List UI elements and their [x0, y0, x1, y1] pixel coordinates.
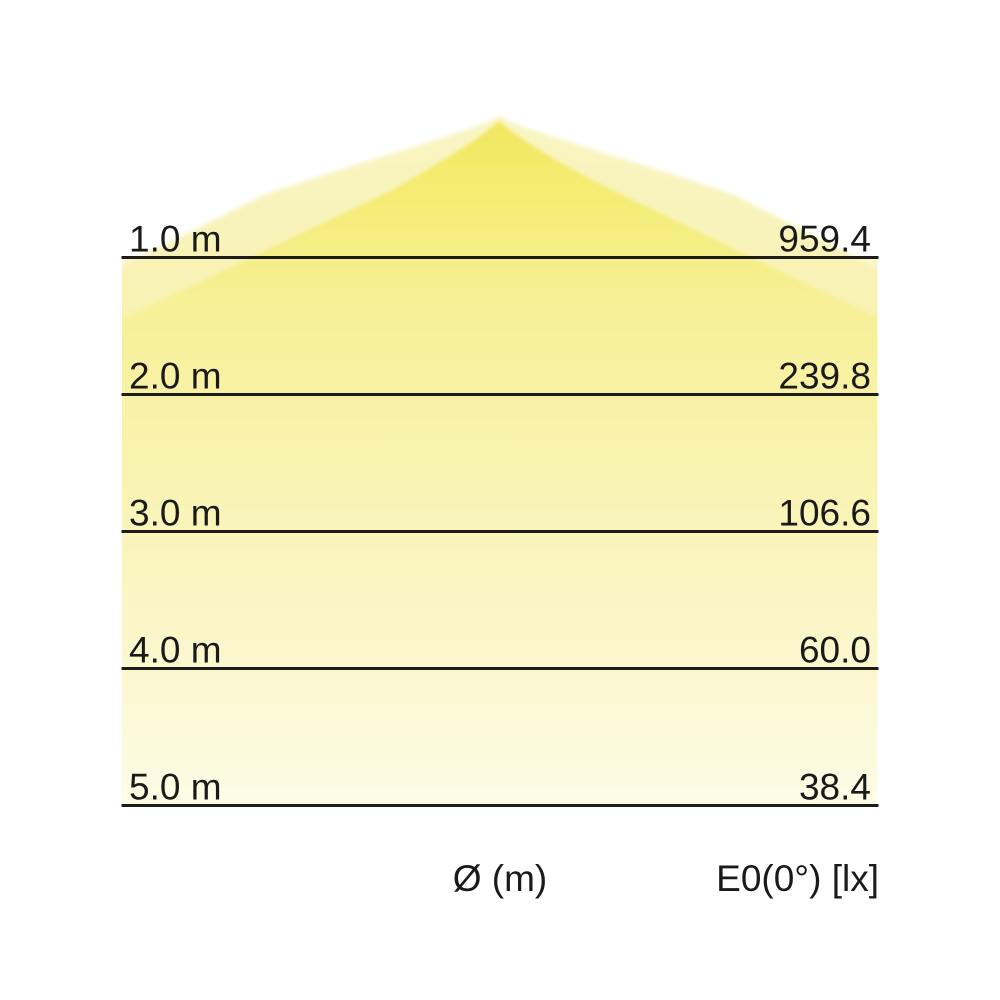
svg-text:Ø (m): Ø (m) [453, 858, 548, 899]
svg-text:2.0 m: 2.0 m [129, 356, 222, 397]
svg-text:5.0 m: 5.0 m [129, 767, 222, 808]
svg-text:3.0 m: 3.0 m [129, 493, 222, 534]
svg-text:959.4: 959.4 [778, 219, 871, 260]
svg-text:38.4: 38.4 [799, 767, 871, 808]
svg-text:60.0: 60.0 [799, 630, 871, 671]
svg-text:106.6: 106.6 [778, 493, 871, 534]
svg-text:E0(0°) [lx]: E0(0°) [lx] [716, 858, 879, 899]
svg-text:1.0 m: 1.0 m [129, 219, 222, 260]
svg-text:4.0 m: 4.0 m [129, 630, 222, 671]
svg-text:239.8: 239.8 [778, 356, 871, 397]
